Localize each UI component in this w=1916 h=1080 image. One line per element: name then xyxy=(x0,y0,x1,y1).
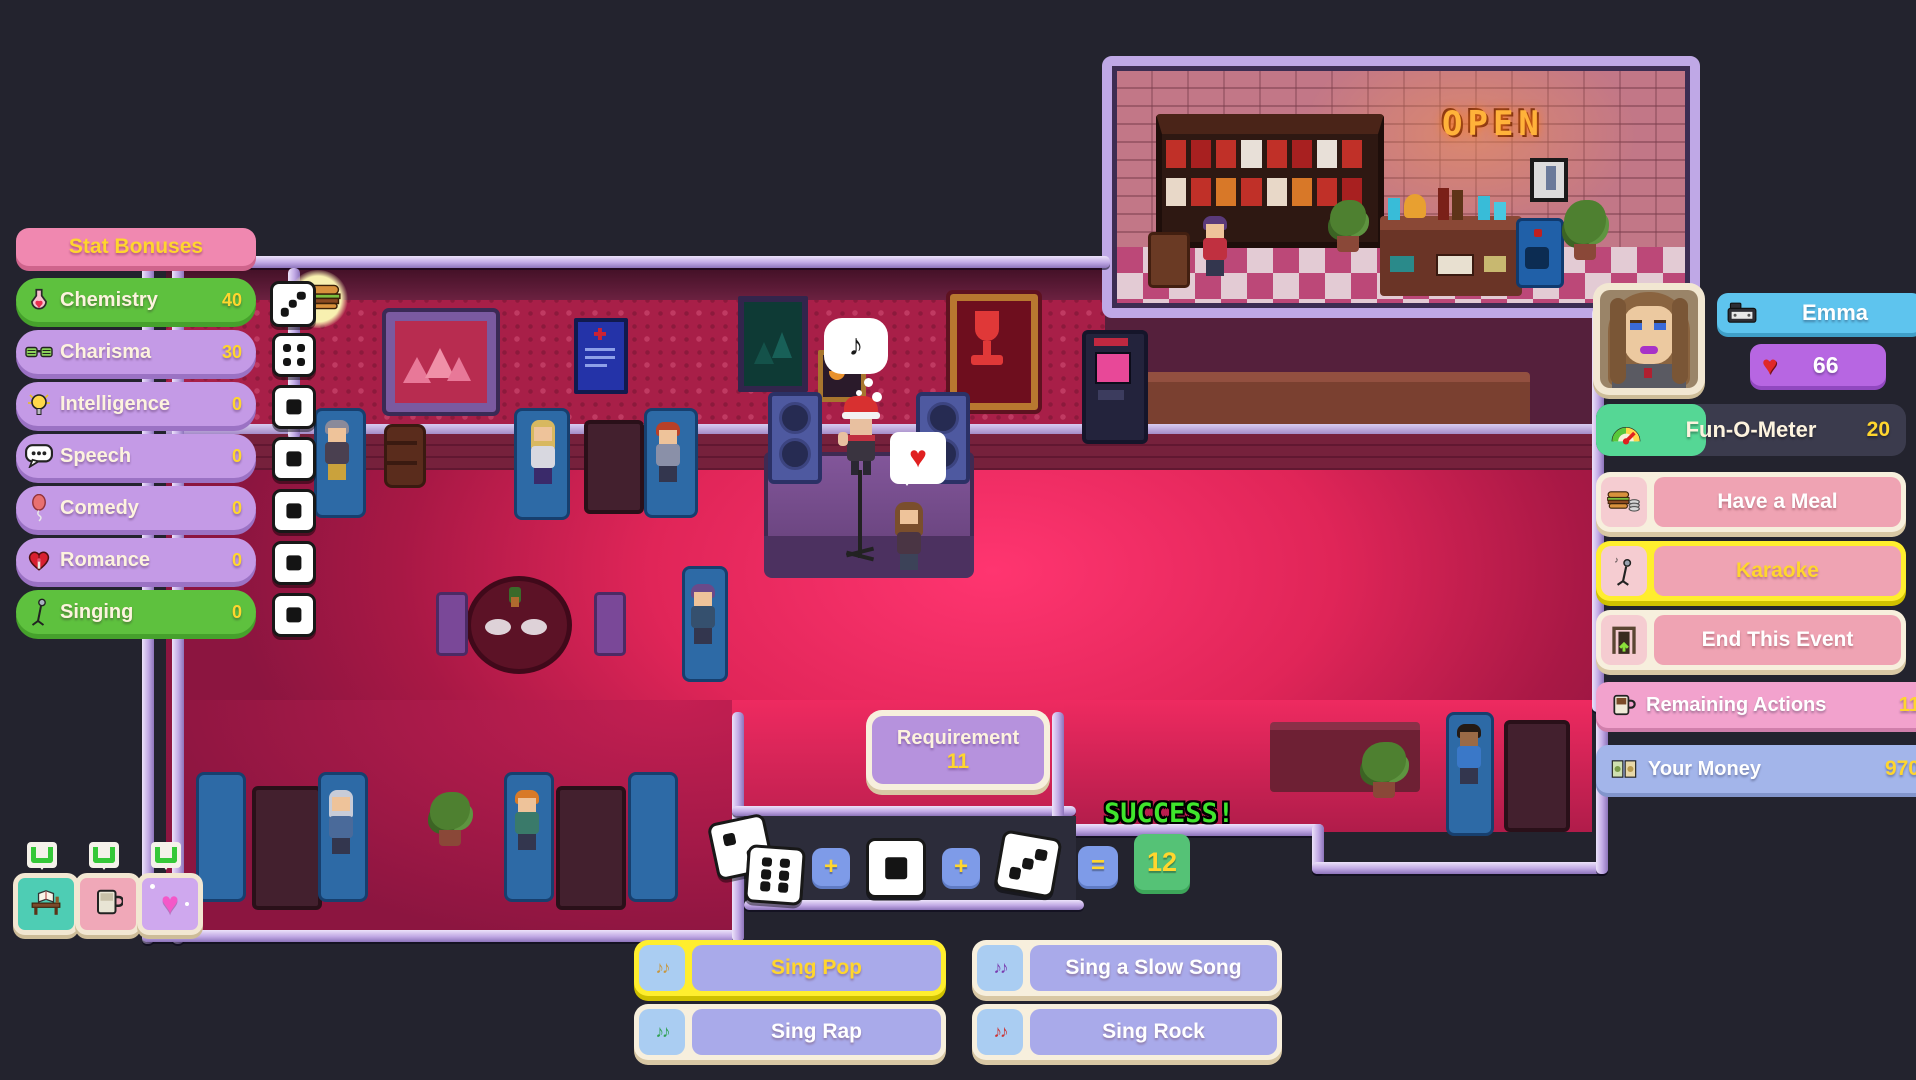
chemistry-die xyxy=(270,281,316,327)
requirement-label: Requirement xyxy=(897,727,1019,750)
emma-sprite xyxy=(890,502,928,584)
equals-chip: = xyxy=(1078,846,1118,886)
karaoke-mic-icon: ♪ xyxy=(1601,546,1647,596)
end-this-event-label: End This Event xyxy=(1654,615,1901,665)
stat-label: Comedy xyxy=(60,497,232,520)
sing-a-slow-song-label: Sing a Slow Song xyxy=(1030,945,1277,991)
fun-o-meter-label: Fun-O-Meter xyxy=(1596,417,1906,443)
speaker-left xyxy=(768,392,822,484)
table-chair xyxy=(594,592,626,656)
sing-rock-label: Sing Rock xyxy=(1030,1009,1277,1055)
roll-total: 12 xyxy=(1134,834,1190,890)
hotspot-indicator-icon xyxy=(151,842,181,868)
booth-table xyxy=(252,786,322,910)
npc-cap-guy xyxy=(318,418,356,488)
poster-blue xyxy=(574,318,628,394)
npc-bartender xyxy=(1196,214,1234,286)
your-money-label: Your Money xyxy=(1648,758,1885,781)
party-glasses-icon xyxy=(24,337,54,367)
fun-o-meter-value: 20 xyxy=(1867,418,1890,442)
music-speech-bubble: ♪ xyxy=(824,318,888,374)
svg-text:♪: ♪ xyxy=(1614,556,1618,564)
plus-chip: + xyxy=(942,848,980,886)
requirement-box: Requirement 11 xyxy=(866,710,1050,790)
npc-blue-shirt xyxy=(1450,722,1488,796)
exit-door-icon xyxy=(1601,615,1647,665)
round-table xyxy=(466,576,572,674)
bar-room: OPEN xyxy=(1102,56,1700,318)
sing-rap-button[interactable]: Sing Rap xyxy=(634,1004,946,1060)
sing-a-slow-song-button[interactable]: Sing a Slow Song xyxy=(972,940,1282,996)
stat-row-speech: Speech 0 xyxy=(16,434,256,478)
stat-bonuses-title: Stat Bonuses xyxy=(16,228,256,266)
music-notes-icon xyxy=(639,945,685,991)
microphone-stand-icon xyxy=(24,597,54,627)
barrel xyxy=(384,424,426,488)
arcade-machine xyxy=(1082,330,1148,444)
hotspot-chip-mug[interactable] xyxy=(75,873,141,935)
heart-rose-icon xyxy=(24,545,54,575)
stat-label: Romance xyxy=(60,549,232,572)
mug-icon xyxy=(93,887,123,922)
requirement-value: 11 xyxy=(947,750,969,774)
booth-table xyxy=(584,420,644,514)
stat-value: 0 xyxy=(232,446,242,467)
music-note-icon: ♪ xyxy=(849,329,864,363)
your-money-pill: Your Money 970 xyxy=(1596,745,1916,793)
stat-row-intelligence: Intelligence 0 xyxy=(16,382,256,426)
stat-label: Intelligence xyxy=(60,393,232,416)
stat-value: 0 xyxy=(232,602,242,623)
potted-plant xyxy=(1330,200,1366,252)
bubble-dot-2 xyxy=(856,390,862,396)
potted-plant xyxy=(1564,200,1606,260)
sing-pop-button[interactable]: Sing Pop xyxy=(634,940,946,996)
frame-br-bottom-2 xyxy=(1312,862,1608,874)
sing-pop-label: Sing Pop xyxy=(692,945,941,991)
comedy-die xyxy=(272,489,316,533)
success-text: SUCCESS! xyxy=(1104,798,1234,829)
booth-chair xyxy=(628,772,678,902)
npc-redhead xyxy=(650,420,686,490)
stat-value: 0 xyxy=(232,394,242,415)
hotspot-chip-desk[interactable] xyxy=(13,873,79,935)
your-money-value: 970 xyxy=(1885,757,1916,781)
emma-portrait xyxy=(1600,290,1698,388)
bubble-dot-1 xyxy=(864,378,873,387)
remaining-actions-label: Remaining Actions xyxy=(1646,694,1899,717)
heart-icon: ♥ xyxy=(1762,350,1777,381)
speech-bubble-icon xyxy=(24,441,54,471)
npc-silver-hair xyxy=(322,788,360,862)
remaining-actions-value: 11 xyxy=(1899,694,1916,717)
character-name: Emma xyxy=(1757,300,1913,326)
money-icon xyxy=(1610,757,1638,781)
have-a-meal-label: Have a Meal xyxy=(1654,477,1901,527)
music-notes-icon xyxy=(977,945,1023,991)
stat-value: 30 xyxy=(222,342,242,363)
booth-table xyxy=(556,786,626,910)
boombox-icon xyxy=(1727,302,1757,324)
singing-die xyxy=(272,593,316,637)
speech-die xyxy=(272,437,316,481)
bonus-die-2 xyxy=(993,829,1063,899)
frame-top xyxy=(142,256,1110,268)
remaining-actions-pill: Remaining Actions 11 xyxy=(1596,682,1916,728)
stat-row-singing: Singing 0 xyxy=(16,590,256,634)
fun-o-meter: Fun-O-Meter 20 xyxy=(1596,404,1906,456)
rolled-die-2 xyxy=(744,844,806,906)
game-screen: { "ui_colors":{"pill_green":"#5ec13e","p… xyxy=(0,0,1916,1080)
game-scene: ♪ ♥ xyxy=(0,0,1916,1080)
stat-label: Chemistry xyxy=(60,289,222,312)
booth-chair xyxy=(196,772,246,902)
have-a-meal-button[interactable]: Have a Meal xyxy=(1596,472,1906,532)
npc-purple-hair xyxy=(686,582,720,648)
meal-icon xyxy=(1601,477,1647,527)
potted-plant xyxy=(1362,742,1406,798)
stat-row-comedy: Comedy 0 xyxy=(16,486,256,530)
sing-rock-button[interactable]: Sing Rock xyxy=(972,1004,1282,1060)
hotspot-chip-heart[interactable]: ♥ xyxy=(137,873,203,935)
affection-value: 66 xyxy=(1777,352,1874,379)
romance-die xyxy=(272,541,316,585)
mic-stand xyxy=(858,470,862,558)
heart-icon: ♥ xyxy=(909,441,927,475)
character-name-pill: Emma xyxy=(1717,293,1916,333)
end-this-event-button[interactable]: End This Event xyxy=(1596,610,1906,670)
painting-dark xyxy=(738,296,808,392)
frame-eq-top xyxy=(732,806,1076,816)
booth-table xyxy=(1504,720,1570,832)
affection-pill: ♥ 66 xyxy=(1750,344,1886,386)
sparkle-heart-icon: ♥ xyxy=(161,887,179,921)
stat-label: Speech xyxy=(60,445,232,468)
plus-chip: + xyxy=(812,848,850,886)
stat-label: Charisma xyxy=(60,341,222,364)
karaoke-button[interactable]: ♪ Karaoke xyxy=(1596,541,1906,601)
stat-label: Singing xyxy=(60,601,232,624)
intelligence-die xyxy=(272,385,316,429)
mug-icon xyxy=(1610,692,1636,718)
heart-bubble: ♥ xyxy=(890,432,946,484)
stat-value: 0 xyxy=(232,550,242,571)
stat-value: 0 xyxy=(232,498,242,519)
bar-counter xyxy=(1380,216,1522,296)
wood-bin xyxy=(1148,232,1190,288)
potted-plant xyxy=(430,792,470,846)
stat-row-charisma: Charisma 30 xyxy=(16,330,256,374)
frame-br-right xyxy=(1596,712,1608,874)
stat-row-romance: Romance 0 xyxy=(16,538,256,582)
music-notes-icon xyxy=(977,1009,1023,1055)
painting-trees xyxy=(386,312,496,412)
chemistry-flask-icon xyxy=(24,285,54,315)
karaoke-label: Karaoke xyxy=(1654,546,1901,596)
npc-orange-hair xyxy=(508,788,546,862)
stat-value: 40 xyxy=(222,290,242,311)
music-notes-icon xyxy=(639,1009,685,1055)
charisma-die xyxy=(272,333,316,377)
hotspot-indicator-icon xyxy=(89,842,119,868)
wall-frame-small xyxy=(1530,158,1568,202)
sing-rap-label: Sing Rap xyxy=(692,1009,941,1055)
trash-can-blue xyxy=(1516,218,1564,288)
stat-row-chemistry: Chemistry 40 xyxy=(16,278,256,322)
hotspot-indicator-icon xyxy=(27,842,57,868)
npc-blonde-woman xyxy=(524,418,562,496)
open-sign: OPEN xyxy=(1442,104,1544,144)
portrait-frame xyxy=(1593,283,1705,395)
desk-book-icon xyxy=(30,888,62,921)
balloon-icon xyxy=(24,493,54,523)
table-chair xyxy=(436,592,468,656)
bonus-die-1 xyxy=(866,838,926,898)
lightbulb-icon xyxy=(24,389,54,419)
